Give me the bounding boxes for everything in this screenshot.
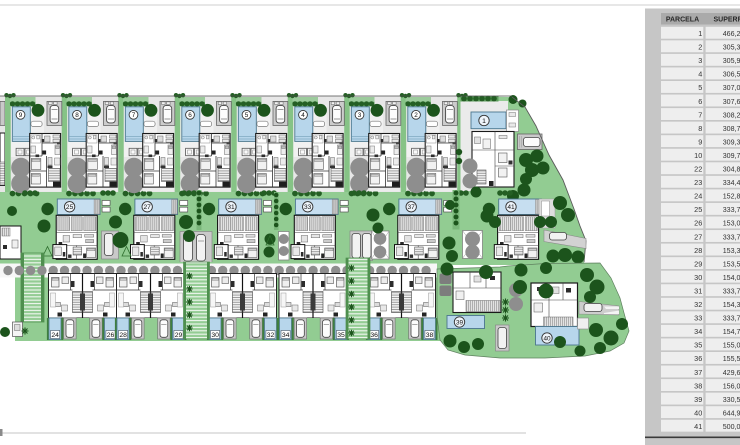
svg-text:155,0: 155,0 bbox=[723, 342, 740, 350]
svg-text:34: 34 bbox=[282, 332, 290, 339]
svg-text:305,3: 305,3 bbox=[723, 44, 740, 52]
svg-text:8: 8 bbox=[698, 124, 702, 133]
svg-text:38: 38 bbox=[426, 332, 434, 339]
svg-text:35: 35 bbox=[337, 332, 345, 339]
svg-text:306,5: 306,5 bbox=[723, 71, 740, 79]
svg-text:307,6: 307,6 bbox=[723, 98, 740, 106]
svg-text:30: 30 bbox=[211, 332, 219, 339]
svg-text:466,2: 466,2 bbox=[723, 30, 740, 38]
svg-text:309,7: 309,7 bbox=[723, 152, 740, 160]
svg-text:24: 24 bbox=[694, 192, 702, 201]
svg-text:32: 32 bbox=[694, 300, 702, 309]
svg-text:429,6: 429,6 bbox=[723, 369, 740, 377]
svg-text:3: 3 bbox=[698, 56, 702, 65]
svg-text:36: 36 bbox=[694, 354, 702, 363]
svg-text:154,7: 154,7 bbox=[723, 328, 740, 336]
svg-text:5: 5 bbox=[245, 112, 249, 119]
svg-text:7: 7 bbox=[698, 110, 702, 119]
svg-text:156,0: 156,0 bbox=[723, 382, 740, 390]
svg-text:33: 33 bbox=[304, 204, 312, 211]
svg-text:39: 39 bbox=[456, 319, 464, 326]
svg-text:32: 32 bbox=[267, 332, 275, 339]
svg-text:154,3: 154,3 bbox=[723, 301, 740, 309]
svg-text:26: 26 bbox=[694, 219, 702, 228]
svg-text:7: 7 bbox=[132, 112, 136, 119]
svg-text:330,5: 330,5 bbox=[723, 396, 740, 404]
svg-text:500,0: 500,0 bbox=[723, 423, 740, 431]
svg-text:309,3: 309,3 bbox=[723, 138, 740, 146]
svg-text:155,5: 155,5 bbox=[723, 355, 740, 363]
svg-text:6: 6 bbox=[698, 97, 702, 106]
svg-text:27: 27 bbox=[694, 232, 702, 241]
svg-text:31: 31 bbox=[227, 204, 235, 211]
svg-text:40: 40 bbox=[543, 335, 551, 342]
svg-text:39: 39 bbox=[694, 395, 702, 404]
svg-text:29: 29 bbox=[694, 259, 702, 268]
svg-text:154,0: 154,0 bbox=[723, 274, 740, 282]
svg-text:1: 1 bbox=[482, 118, 486, 125]
svg-text:333,7: 333,7 bbox=[723, 233, 740, 241]
svg-text:28: 28 bbox=[694, 246, 702, 255]
svg-text:4: 4 bbox=[698, 70, 702, 79]
svg-text:41: 41 bbox=[694, 422, 702, 431]
svg-text:308,7: 308,7 bbox=[723, 125, 740, 133]
svg-text:2: 2 bbox=[414, 112, 418, 119]
svg-text:1: 1 bbox=[698, 29, 702, 38]
svg-text:28: 28 bbox=[119, 332, 127, 339]
svg-text:333,7: 333,7 bbox=[723, 315, 740, 323]
svg-text:37: 37 bbox=[408, 204, 416, 211]
svg-text:2: 2 bbox=[698, 43, 702, 52]
svg-text:3: 3 bbox=[358, 112, 362, 119]
svg-text:333,7: 333,7 bbox=[723, 206, 740, 214]
svg-text:5: 5 bbox=[698, 83, 702, 92]
svg-text:38: 38 bbox=[694, 381, 702, 390]
svg-text:26: 26 bbox=[107, 332, 115, 339]
svg-text:10: 10 bbox=[694, 151, 702, 160]
svg-text:9: 9 bbox=[698, 137, 702, 146]
svg-text:25: 25 bbox=[694, 205, 702, 214]
svg-text:304,8: 304,8 bbox=[723, 166, 740, 174]
svg-text:25: 25 bbox=[66, 204, 74, 211]
svg-text:9: 9 bbox=[19, 112, 23, 119]
svg-text:40: 40 bbox=[694, 408, 702, 417]
svg-text:27: 27 bbox=[144, 204, 152, 211]
svg-text:4: 4 bbox=[301, 112, 305, 119]
svg-text:153,3: 153,3 bbox=[723, 247, 740, 255]
svg-text:152,8: 152,8 bbox=[723, 193, 740, 201]
svg-text:SUPERFICIE: SUPERFICIE bbox=[714, 17, 740, 24]
svg-text:644,9: 644,9 bbox=[723, 409, 740, 417]
svg-text:33: 33 bbox=[694, 314, 702, 323]
svg-text:30: 30 bbox=[694, 273, 702, 282]
svg-text:305,9: 305,9 bbox=[723, 57, 740, 65]
svg-text:37: 37 bbox=[694, 368, 702, 377]
svg-text:23: 23 bbox=[694, 178, 702, 187]
svg-text:333,7: 333,7 bbox=[723, 287, 740, 295]
svg-text:334,4: 334,4 bbox=[723, 179, 740, 187]
svg-text:8: 8 bbox=[75, 112, 79, 119]
svg-text:22: 22 bbox=[694, 165, 702, 174]
svg-text:29: 29 bbox=[175, 332, 183, 339]
svg-text:36: 36 bbox=[370, 332, 378, 339]
svg-text:6: 6 bbox=[188, 112, 192, 119]
svg-text:35: 35 bbox=[694, 341, 702, 350]
svg-text:41: 41 bbox=[507, 204, 515, 211]
svg-text:307,0: 307,0 bbox=[723, 84, 740, 92]
svg-text:34: 34 bbox=[694, 327, 702, 336]
svg-text:153,5: 153,5 bbox=[723, 260, 740, 268]
svg-text:PARCELA: PARCELA bbox=[666, 17, 699, 24]
svg-text:153,0: 153,0 bbox=[723, 220, 740, 228]
svg-text:24: 24 bbox=[51, 332, 59, 339]
svg-text:308,2: 308,2 bbox=[723, 111, 740, 119]
svg-text:31: 31 bbox=[694, 286, 702, 295]
